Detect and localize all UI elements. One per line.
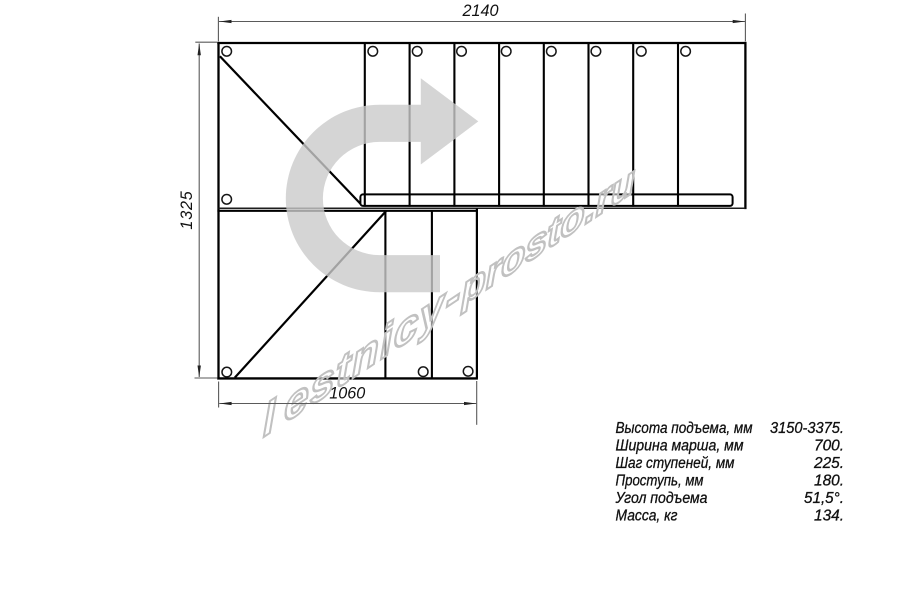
svg-text:1325: 1325 [178, 190, 196, 229]
svg-text:Шаг ступеней, мм: Шаг ступеней, мм [616, 455, 735, 472]
svg-text:Масса, кг: Масса, кг [616, 507, 678, 524]
svg-text:Ширина марша, мм: Ширина марша, мм [616, 437, 744, 454]
svg-text:225.: 225. [813, 455, 844, 472]
svg-text:51,5°.: 51,5°. [804, 490, 844, 507]
svg-text:3150-3375.: 3150-3375. [770, 420, 844, 437]
svg-text:1060: 1060 [329, 384, 365, 402]
svg-text:Угол подъема: Угол подъема [615, 490, 708, 507]
svg-text:Высота подъема, мм: Высота подъема, мм [616, 420, 753, 437]
svg-text:134.: 134. [814, 507, 844, 524]
svg-text:2140: 2140 [461, 2, 498, 20]
svg-text:180.: 180. [814, 472, 844, 489]
svg-text:700.: 700. [814, 437, 844, 454]
svg-text:Проступь, мм: Проступь, мм [616, 472, 704, 489]
